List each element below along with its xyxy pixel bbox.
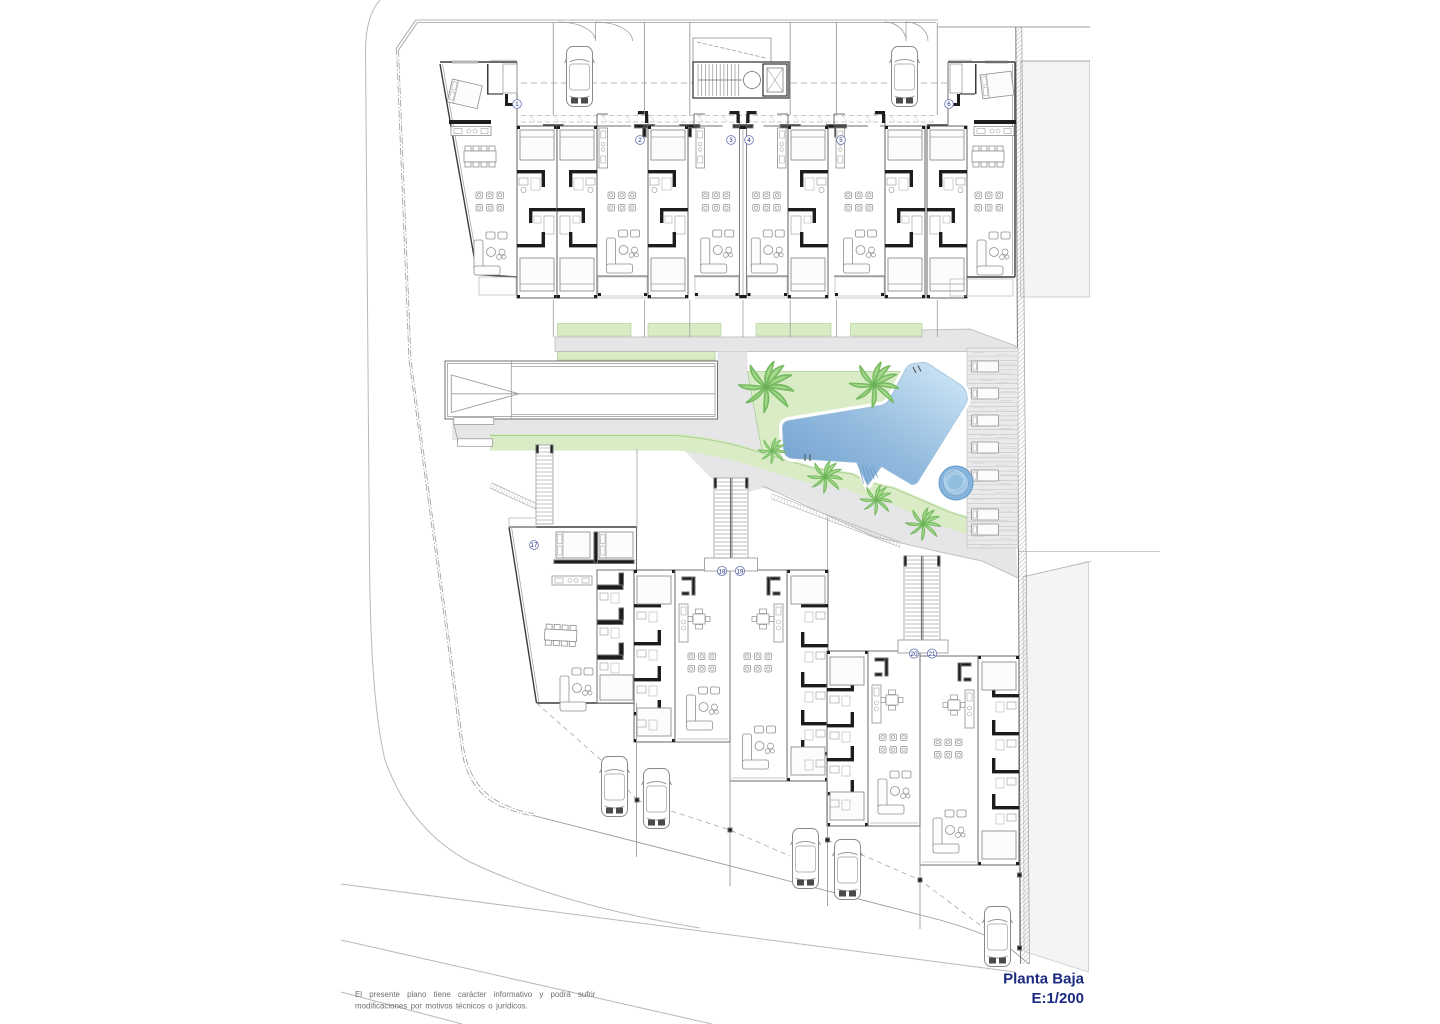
svg-text:6: 6 [947,101,951,108]
svg-text:modificaciones por motivos téc: modificaciones por motivos técnicos o ju… [355,1002,528,1011]
svg-text:18: 18 [719,568,726,575]
svg-text:4: 4 [747,137,751,144]
svg-text:21: 21 [929,651,936,658]
svg-text:5: 5 [839,137,843,144]
svg-text:El presente plano tiene caráct: El presente plano tiene carácter informa… [355,990,596,999]
svg-text:3: 3 [729,137,733,144]
svg-text:E:1/200: E:1/200 [1031,990,1084,1007]
svg-text:1: 1 [515,101,519,108]
svg-text:19: 19 [737,568,744,575]
svg-text:17: 17 [531,542,538,549]
svg-text:2: 2 [638,137,642,144]
svg-text:20: 20 [911,651,918,658]
svg-text:Planta Baja: Planta Baja [1003,971,1085,988]
